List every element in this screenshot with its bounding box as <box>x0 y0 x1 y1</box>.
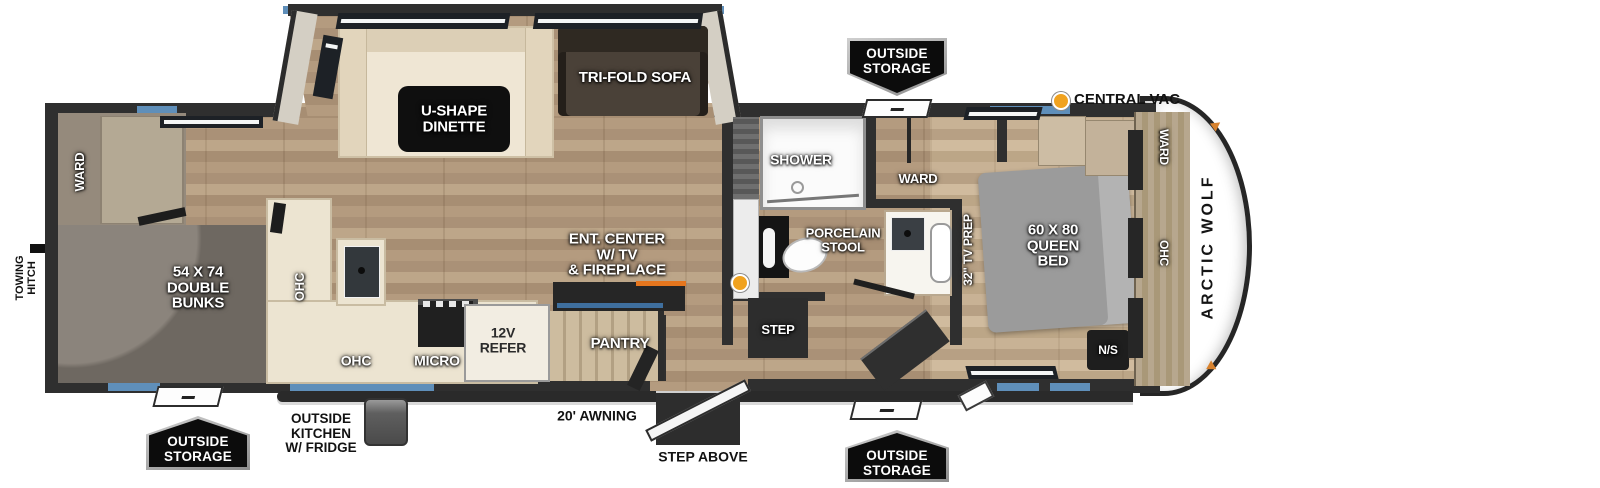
left-wall <box>45 103 58 393</box>
dinette-back-cushion <box>340 28 552 52</box>
toilet-paper-roll <box>763 228 775 268</box>
bath-left-wall <box>722 110 733 345</box>
bunk-window <box>160 116 263 128</box>
vanity-sink <box>891 217 925 251</box>
accent-bottom-bed1 <box>997 383 1039 391</box>
tv-prep-label: 32" TV PREP <box>962 214 974 286</box>
bedroom-ward-label: WARD <box>1158 129 1170 165</box>
ent-center-label-line1: ENT. CENTER <box>568 232 666 248</box>
outside-kitchen-label-line1: OUTSIDE <box>285 412 356 427</box>
utility-marker-dot <box>731 274 749 292</box>
dinette-table: U-SHAPE DINETTE <box>398 86 510 152</box>
pantry-label: PANTRY <box>591 336 650 352</box>
slide-window-right <box>533 13 703 29</box>
stool-label-line1: PORCELAIN <box>806 226 881 240</box>
slide-window-left <box>336 13 511 29</box>
central-vac-dot <box>1052 92 1070 110</box>
storage-flap-bottom-left <box>152 386 223 407</box>
outside-storage-badge-top: OUTSIDE STORAGE <box>847 38 947 96</box>
shower-right-wall <box>866 112 876 208</box>
refer-label-line2: REFER <box>480 340 526 355</box>
night-stand-label: N/S <box>1098 344 1117 356</box>
bedroom-head-cabinet <box>1038 116 1086 166</box>
outside-storage-bc-line1: OUTSIDE <box>866 448 927 463</box>
ward-closet-rod <box>907 117 911 163</box>
awning-label: 20' AWNING <box>557 408 637 423</box>
kitchen-ohc-upper-label: OHC <box>293 273 307 301</box>
outside-storage-bl-line2: STORAGE <box>164 449 232 464</box>
dinette-left-bench <box>340 28 367 156</box>
bunks-label-line3: BUNKS <box>167 296 229 312</box>
bed-label-line2: QUEEN <box>1027 238 1079 254</box>
floorplan-canvas: ARCTIC WOLF U-SHAPE DINETTE TRI-FOLD SOF… <box>0 0 1600 488</box>
kitchen-sink <box>344 246 380 298</box>
outside-storage-badge-bottom-left: OUTSIDE STORAGE <box>146 416 250 470</box>
toilet-tank <box>759 216 789 278</box>
vanity-faucet <box>904 230 911 237</box>
accent-bottom-bed2 <box>1050 383 1090 391</box>
wardrobe-drawer1 <box>1128 130 1143 190</box>
stool-label-line2: STOOL <box>806 240 881 254</box>
bedroom-window-bottom <box>965 366 1058 379</box>
outside-kitchen-label-line3: W/ FRIDGE <box>285 441 356 456</box>
storage-flap-top <box>862 99 933 118</box>
bunk-ward-label: WARD <box>73 153 87 192</box>
micro-label: MICRO <box>414 354 460 369</box>
shower-door <box>767 194 859 203</box>
sink-drain <box>358 267 365 274</box>
refer-label-line1: 12V <box>480 325 526 340</box>
ent-center-shelf-accent <box>557 303 663 308</box>
dinette-label-line2: DINETTE <box>421 119 487 135</box>
bedroom-window-top <box>963 107 1042 120</box>
bedroom-ohc-label: OHC <box>1158 240 1170 266</box>
outside-kitchen-label-line2: KITCHEN <box>285 427 356 442</box>
sofa-label: TRI-FOLD SOFA <box>579 70 691 86</box>
dinette-right-bench <box>525 28 552 156</box>
step-above-label: STEP ABOVE <box>658 449 747 464</box>
outside-fridge <box>364 398 408 446</box>
outside-storage-bl-line1: OUTSIDE <box>167 434 228 449</box>
towing-hitch-label-line2: HITCH <box>27 255 39 300</box>
ward-bottom-wall <box>866 199 962 208</box>
vanity-basin <box>930 223 952 283</box>
storage-flap-bottom-center <box>850 400 923 420</box>
fireplace-accent <box>636 281 686 286</box>
accent-bottom-bunk <box>108 383 160 391</box>
bath-duct <box>733 117 759 199</box>
outside-storage-badge-bottom-center: OUTSIDE STORAGE <box>845 430 949 482</box>
wardrobe-drawer2 <box>1128 218 1143 278</box>
kitchen-ohc-lower-label: OHC <box>341 354 372 369</box>
outside-storage-bc-line2: STORAGE <box>863 463 931 478</box>
wardrobe-doors <box>100 116 184 224</box>
brand-text: ARCTIC WOLF <box>1201 175 1218 320</box>
shower-drain <box>791 181 804 194</box>
accent-bottom-kitchen <box>290 383 434 391</box>
shower-label: SHOWER <box>770 153 832 168</box>
bunks-label-line1: 54 X 74 <box>167 265 229 281</box>
central-vac-label: CENTRAL VAC <box>1074 92 1180 108</box>
outside-storage-top-line1: OUTSIDE <box>866 46 927 61</box>
ent-center-label-line2: W/ TV <box>568 247 666 263</box>
step-label: STEP <box>761 323 794 337</box>
bath-vanity <box>884 210 952 296</box>
bed-label-line3: BED <box>1027 254 1079 270</box>
ent-center-label-line3: & FIREPLACE <box>568 263 666 279</box>
bath-ward-label: WARD <box>899 172 938 186</box>
wardrobe-drawer3 <box>1128 298 1143 358</box>
dinette-label-line1: U-SHAPE <box>421 103 487 119</box>
bed-label-line1: 60 X 80 <box>1027 223 1079 239</box>
bunks-label-line2: DOUBLE <box>167 280 229 296</box>
outside-storage-top-line2: STORAGE <box>863 61 931 76</box>
